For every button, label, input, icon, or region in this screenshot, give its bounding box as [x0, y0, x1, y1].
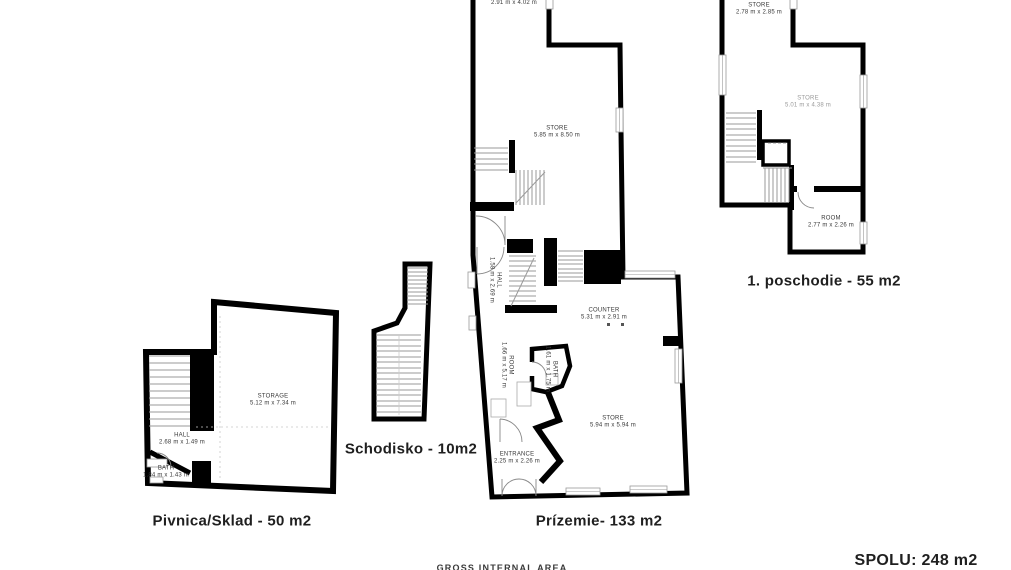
room-label-room-first: ROOM 2.77 m x 2.26 m	[808, 216, 854, 229]
poschodie-room-door-gap	[797, 185, 814, 193]
plan-title-poschodie: 1. poschodie - 55 m2	[747, 273, 901, 290]
room-dims: 5.85 m x 8.50 m	[534, 132, 580, 139]
room-label-hall-cellar: HALL 2.68 m x 1.49 m	[159, 433, 205, 446]
poschodie-outer-walls	[722, 0, 863, 252]
prizemie-wall-d	[505, 305, 557, 313]
prizemie-shelf	[517, 382, 531, 406]
plan-title-schodisko: Schodisko - 10m2	[345, 441, 477, 458]
floorplan-sheet: STORAGE 5.12 m x 7.34 m HALL 2.68 m x 1.…	[0, 0, 1011, 570]
room-label-store-lower: STORE 5.94 m x 5.94 m	[590, 416, 636, 429]
total-area-label: SPOLU: 248 m2	[854, 552, 977, 570]
prizemie-wall-f	[584, 250, 621, 284]
poschodie-closet	[763, 141, 789, 165]
plan-title-pivnica: Pivnica/Sklad - 50 m2	[153, 513, 312, 530]
prizemie-wall-a	[470, 202, 514, 211]
room-dims: 5.94 m x 5.94 m	[590, 422, 636, 429]
room-label-room-ground: ROOM 1.66 m x 5.17 m	[501, 342, 514, 388]
room-label-store-main: STORE 5.01 m x 4.38 m	[785, 96, 831, 109]
room-dims: 1.66 m x 5.17 m	[501, 342, 508, 388]
prizemie-wall-c	[507, 239, 533, 253]
room-label-hall-ground: HALL 1.58 m x 2.69 m	[489, 257, 502, 303]
room-label-bath-ground: BATH 1.61 m x 1.75 m	[545, 346, 558, 392]
plan-title-prizemie: Prízemie- 133 m2	[536, 513, 663, 530]
pivnica-stair-wall	[190, 351, 214, 431]
room-label-store-upper: STORE 5.85 m x 8.50 m	[534, 126, 580, 139]
room-dims: 5.12 m x 7.34 m	[250, 400, 296, 407]
room-dims: 5.31 m x 2.91 m	[581, 314, 627, 321]
room-dims: 2.91 m x 4.02 m	[491, 0, 537, 6]
room-dims: 1.61 m x 1.75 m	[545, 346, 552, 392]
room-label-entrance: ENTRANCE 2.25 m x 2.26 m	[494, 452, 540, 465]
gross-internal-area-label: GROSS INTERNAL AREA	[437, 563, 568, 570]
pivnica-bath-wall-block	[192, 461, 211, 484]
room-name: ENTRANCE	[494, 452, 540, 459]
room-label-store-small: STORE 2.78 m x 2.85 m	[736, 3, 782, 16]
plan-prizemie-drawing	[468, 0, 687, 497]
room-name: ROOM	[507, 342, 514, 388]
room-dims: 2.68 m x 1.49 m	[159, 439, 205, 446]
room-dims: 1.58 m x 2.69 m	[489, 257, 496, 303]
prizemie-shelf-2	[491, 399, 506, 417]
prizemie-column-dot-2	[621, 323, 624, 326]
room-dims: 1.84 m x 1.43 m	[143, 472, 189, 479]
room-dims: 5.01 m x 4.38 m	[785, 102, 831, 109]
room-dims: 2.25 m x 2.26 m	[494, 458, 540, 465]
room-label-counter: COUNTER 5.31 m x 2.91 m	[581, 308, 627, 321]
room-label-top-clipped: 2.91 m x 4.02 m	[491, 0, 537, 6]
prizemie-wall-pier	[663, 336, 681, 346]
plan-pivnica-drawing	[146, 302, 336, 491]
prizemie-outer-walls	[473, 0, 687, 497]
room-label-storage: STORAGE 5.12 m x 7.34 m	[250, 394, 296, 407]
plan-schodisko-drawing	[374, 264, 430, 419]
room-name: HALL	[495, 257, 502, 303]
schodisko-outer-walls	[374, 264, 430, 419]
prizemie-wall-b	[509, 140, 515, 173]
room-dims: 2.77 m x 2.26 m	[808, 222, 854, 229]
room-label-bath-cellar: BATH 1.84 m x 1.43 m	[143, 466, 189, 479]
room-name: BATH	[551, 346, 558, 392]
prizemie-wall-e	[544, 238, 557, 286]
plan-poschodie-drawing	[719, 0, 867, 252]
prizemie-column-dot	[607, 323, 610, 326]
room-dims: 2.78 m x 2.85 m	[736, 9, 782, 16]
